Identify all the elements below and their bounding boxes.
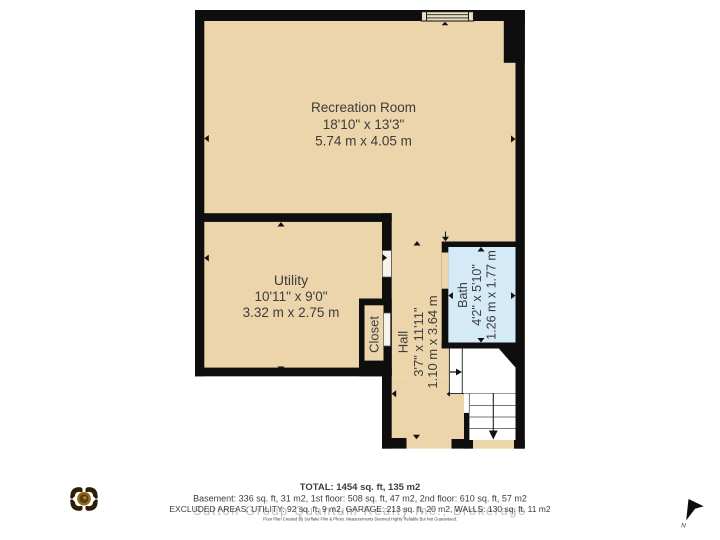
svg-text:Bath: Bath [456,282,470,308]
svg-text:N: N [681,523,686,530]
svg-text:3.32 m x 2.75 m: 3.32 m x 2.75 m [243,305,340,320]
svg-text:Basement: 336 sq. ft, 31 m2, 1: Basement: 336 sq. ft, 31 m2, 1st floor: … [193,493,527,503]
svg-text:Floor Plan Created By Surflake: Floor Plan Created By Surflake Film & Ph… [263,516,457,521]
svg-text:Hall: Hall [396,331,411,354]
svg-text:10'11" x 9'0": 10'11" x 9'0" [254,289,327,304]
svg-text:5.74 m x 4.05 m: 5.74 m x 4.05 m [315,134,412,149]
svg-text:1.26 m x 1.77 m: 1.26 m x 1.77 m [485,250,499,340]
svg-text:18'10" x 13'3": 18'10" x 13'3" [323,117,405,132]
svg-text:EXCLUDED AREAS: UTILITY: 92 sq: EXCLUDED AREAS: UTILITY: 92 sq. ft, 9 m2… [169,504,551,514]
svg-text:1.10 m x 3.64 m: 1.10 m x 3.64 m [425,295,440,388]
svg-text:TOTAL: 1454 sq. ft, 135 m2: TOTAL: 1454 sq. ft, 135 m2 [300,482,421,493]
svg-text:Utility: Utility [274,272,308,288]
svg-text:Recreation Room: Recreation Room [311,100,416,115]
svg-text:4'2" x 5'10": 4'2" x 5'10" [470,264,484,326]
svg-text:Closet: Closet [366,316,381,353]
